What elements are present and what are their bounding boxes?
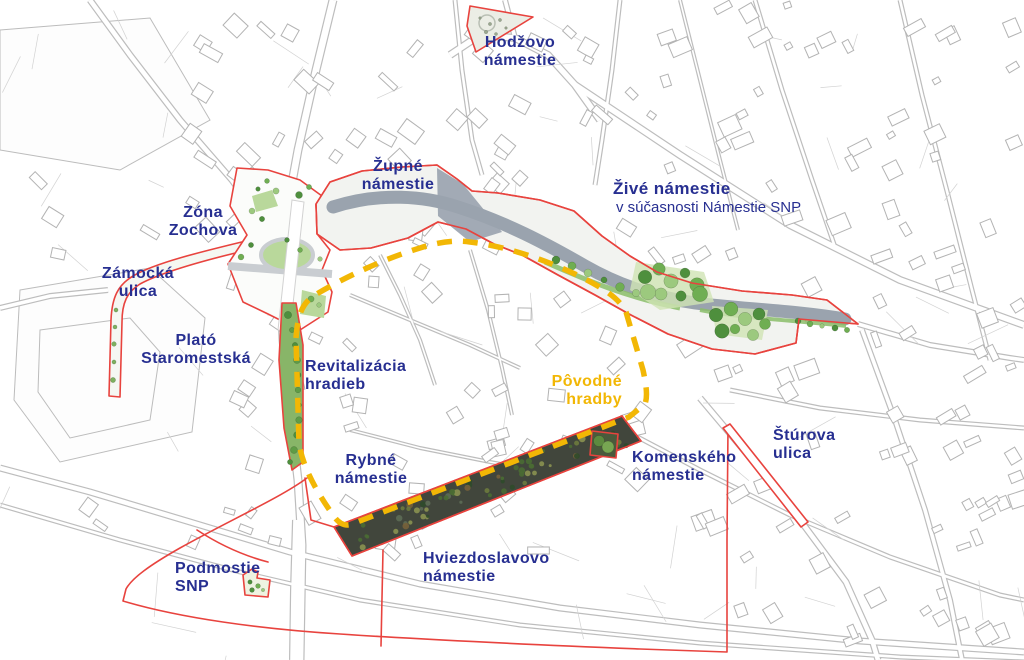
label-hviezdoslavovo-namestie: Hviezdoslavovonámestie bbox=[423, 550, 550, 585]
zone-zochova bbox=[228, 168, 332, 332]
label-podmostie-snp: PodmostieSNP bbox=[175, 560, 260, 595]
zone-komenskeho-namestie bbox=[590, 431, 618, 458]
label-revitalizacia-hradieb: Revitalizáciahradieb bbox=[305, 358, 406, 393]
label-sturova-ulica: Štúrovaulica bbox=[773, 427, 835, 462]
label-komenskeho-namestie: Komenskéhonámestie bbox=[632, 449, 736, 484]
label-plato-staromestska: PlatóStaromestská bbox=[141, 332, 251, 367]
label-zamocka-ulica: Zámockáulica bbox=[102, 265, 174, 300]
label-zive-namestie: Živé námestie v súčasnosti Námestie SNP bbox=[613, 180, 801, 216]
label-zupne-namestie: Župnénámestie bbox=[362, 158, 435, 193]
label-zona-zochova: ZónaZochova bbox=[169, 204, 238, 239]
label-povodne-hradby: Pôvodnéhradby bbox=[552, 373, 622, 408]
label-hodzovo-namestie: Hodžovonámestie bbox=[484, 34, 557, 69]
label-rybne-namestie: Rybnénámestie bbox=[335, 452, 408, 487]
city-projects-map: Hodžovonámestie Župnénámestie Živé námes… bbox=[0, 0, 1024, 660]
